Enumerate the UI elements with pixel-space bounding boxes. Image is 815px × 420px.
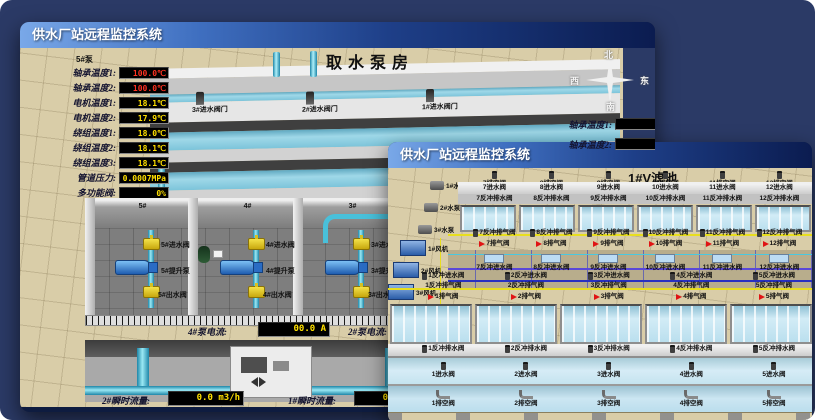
filter-cell[interactable] xyxy=(390,304,472,344)
backwash-air-valve[interactable]: 10反冲排气阀 xyxy=(637,229,694,237)
backwash-drain-label: 10反冲排水阀 xyxy=(646,195,686,202)
backwash-air-label: 1反冲排气阀 xyxy=(425,282,461,289)
backwash-inlet-label: 2反冲进水阀 xyxy=(511,272,547,279)
valve-icon xyxy=(588,272,593,280)
scada-desktop: 供水厂站远程监控系统 xyxy=(0,0,815,420)
backwash-air-valve[interactable]: 12反冲排气阀 xyxy=(751,229,808,237)
telemetry-value: 18.1℃ xyxy=(119,97,169,109)
side-readout-value xyxy=(615,118,655,130)
row-bottom-backwash-inlet: 1反冲进水阀2反冲进水阀3反冲进水阀4反冲进水阀5反冲进水阀6反冲进水阀 xyxy=(402,272,812,280)
backwash-inlet-valve[interactable]: 10反冲进水阀 xyxy=(637,254,694,271)
row-bottom-inlet: 1进水阀2进水阀3进水阀4进水阀5进水阀6进水阀 xyxy=(402,362,812,378)
backwash-inlet-label: 1反冲进水阀 xyxy=(428,272,464,279)
backwash-air-label: 2反冲排气阀 xyxy=(508,282,544,289)
telemetry-value: 100.0℃ xyxy=(119,67,169,79)
red-flag-icon xyxy=(479,241,485,247)
valve-icon xyxy=(771,362,776,370)
air-valve-label: 4排气阀 xyxy=(683,293,706,300)
row-bottom-air: 1排气阀2排气阀3排气阀4排气阀5排气阀6排气阀 xyxy=(402,293,812,300)
front-window[interactable]: 供水厂站远程监控系统 1#V滤池 1#水泵 2#水泵 3#水泵 xyxy=(388,142,812,420)
backwash-air-label: 4反冲排气阀 xyxy=(673,282,709,289)
vent-valve-label: 5排空阀 xyxy=(762,400,785,407)
backwash-air-label: 7反冲排气阀 xyxy=(479,229,515,236)
filter-cell[interactable] xyxy=(755,205,811,232)
inlet-valve[interactable]: 1进水阀 xyxy=(402,362,485,378)
inlet-valve[interactable]: 9进水阀 xyxy=(580,184,637,191)
red-flag-icon xyxy=(676,294,682,300)
tank-icon[interactable] xyxy=(198,246,210,263)
valve-icon xyxy=(606,171,611,179)
backwash-inlet-valve[interactable]: 1反冲进水阀 xyxy=(402,272,485,280)
backwash-inlet-valve[interactable]: 4反冲进水阀 xyxy=(650,272,733,280)
air-valve-label: 5排气阀 xyxy=(766,293,789,300)
backwash-drain-valve[interactable]: 9反冲排水阀 xyxy=(580,195,637,202)
valve-icon xyxy=(670,272,675,280)
inlet-valve[interactable]: 10进水阀 xyxy=(637,184,694,191)
red-flag-icon xyxy=(593,241,599,247)
backwash-drain-label: 12反冲排水阀 xyxy=(760,195,800,202)
inlet-gate-label: 3#进水阀门 xyxy=(192,104,228,115)
compass-north: 北 xyxy=(604,48,613,61)
lift-pump-label: 4#提升泵 xyxy=(266,266,295,276)
backwash-drain-label: 3反冲排水阀 xyxy=(594,345,630,352)
air-valve[interactable]: 12排气阀 xyxy=(751,240,808,247)
back-window-title: 供水厂站远程监控系统 xyxy=(32,27,162,42)
red-flag-icon xyxy=(706,241,712,247)
backwash-drain-valve[interactable]: 3反冲排水阀 xyxy=(567,345,650,353)
valve-icon xyxy=(422,272,427,280)
air-valve[interactable]: 3排气阀 xyxy=(567,293,650,300)
gate-valve-icon xyxy=(306,91,314,104)
inlet-valve-label: 2进水阀 xyxy=(514,371,537,378)
valve-icon xyxy=(670,345,675,353)
inlet-gate[interactable]: 1#进水阀门 xyxy=(422,88,458,112)
air-valve-label: 1排气阀 xyxy=(435,293,458,300)
cyan-post xyxy=(273,52,280,77)
blower[interactable]: 1#风机 xyxy=(400,240,448,256)
backwash-air-label: 10反冲排气阀 xyxy=(649,229,689,236)
compass: 北 西 南 东 xyxy=(548,48,655,114)
valve-actuator-icon xyxy=(769,254,789,263)
backwash-inlet-valve[interactable]: 12反冲进水阀 xyxy=(751,254,808,271)
valve-icon xyxy=(530,229,535,237)
air-valve[interactable]: 1排气阀 xyxy=(402,293,485,300)
backwash-air-valve[interactable]: 5反冲排气阀 xyxy=(733,282,812,289)
valve-icon xyxy=(422,345,427,353)
backwash-inlet-label: 5反冲进水阀 xyxy=(759,272,795,279)
air-valve[interactable]: 4排气阀 xyxy=(650,293,733,300)
row-bottom-vent: 1排空阀2排空阀3排空阀4排空阀5排空阀6排空阀 xyxy=(402,390,812,407)
inlet-valve-label: 8进水阀 xyxy=(540,184,563,191)
row-bottom-backwash-air: 1反冲排气阀2反冲排气阀3反冲排气阀4反冲排气阀5反冲排气阀6反冲排气阀 xyxy=(402,282,812,289)
vent-valve-label: 1排空阀 xyxy=(432,400,455,407)
side-readout-row: 轴承温度2: xyxy=(556,134,655,154)
lift-pump-icon[interactable] xyxy=(325,260,361,275)
swing-valve-icon xyxy=(602,390,616,399)
red-flag-icon xyxy=(536,241,542,247)
compass-west: 西 xyxy=(570,74,579,87)
backwash-drain-valve[interactable]: 11反冲排水阀 xyxy=(694,195,751,202)
backwash-inlet-valve[interactable]: 5反冲进水阀 xyxy=(733,272,812,280)
telemetry-value: 18.1℃ xyxy=(119,157,169,169)
backwash-drain-valve[interactable]: 4反冲排水阀 xyxy=(650,345,733,353)
telemetry-row: 绕组温度3: 18.1℃ xyxy=(28,155,178,170)
inlet-valve[interactable]: 7进水阀 xyxy=(466,184,523,191)
backwash-drain-label: 4反冲排水阀 xyxy=(676,345,712,352)
valve-icon xyxy=(757,229,762,237)
inlet-valve[interactable]: 12进水阀 xyxy=(751,184,808,191)
telemetry-row: 电机温度1: 18.1℃ xyxy=(28,95,178,110)
vent-valve[interactable]: 2排空阀 xyxy=(485,390,568,407)
telemetry-row: 轴承温度1: 100.0℃ xyxy=(28,65,178,80)
inlet-gate[interactable]: 2#进水阀门 xyxy=(302,91,338,115)
backwash-air-valve[interactable]: 2反冲排气阀 xyxy=(485,282,568,289)
inlet-valve-label: 12进水阀 xyxy=(766,184,793,191)
backwash-air-valve[interactable]: 7反冲排气阀 xyxy=(466,229,523,237)
telemetry-value: 100.0℃ xyxy=(119,82,169,94)
valve-icon xyxy=(753,345,758,353)
telemetry-label: 绕组温度1: xyxy=(28,126,119,139)
telemetry-row: 轴承温度2: 100.0℃ xyxy=(28,80,178,95)
filter-cell[interactable] xyxy=(730,304,812,344)
telemetry-label: 电机温度1: xyxy=(28,96,119,109)
inlet-valve[interactable]: 11进水阀 xyxy=(694,184,751,191)
front-window-title: 供水厂站远程监控系统 xyxy=(400,147,530,162)
inlet-valve[interactable]: 4进水阀 xyxy=(650,362,733,378)
inlet-valve-icon[interactable] xyxy=(143,238,160,250)
red-flag-icon xyxy=(511,294,517,300)
gate-valve-icon xyxy=(426,89,434,102)
row-top-air: 7排气阀8排气阀9排气阀10排气阀11排气阀12排气阀 xyxy=(466,240,808,247)
inlet-valve-label: 10进水阀 xyxy=(652,184,679,191)
backwash-inlet-label: 9反冲进水阀 xyxy=(590,264,626,271)
vent-valve-label: 3排空阀 xyxy=(597,400,620,407)
inlet-valve-label: 4#进水阀 xyxy=(266,240,295,250)
inlet-valve-label: 5#进水阀 xyxy=(161,240,190,250)
telemetry-value: 17.9℃ xyxy=(119,112,169,124)
backwash-inlet-valve[interactable]: 7反冲进水阀 xyxy=(466,254,523,271)
backwash-drain-label: 8反冲排水阀 xyxy=(533,195,569,202)
valve-actuator-icon xyxy=(655,254,675,263)
backwash-drain-label: 7反冲排水阀 xyxy=(476,195,512,202)
air-valve[interactable]: 10排气阀 xyxy=(637,240,694,247)
row-top-backwash-air: 7反冲排气阀8反冲排气阀9反冲排气阀10反冲排气阀11反冲排气阀12反冲排气阀 xyxy=(466,229,808,237)
red-flag-icon xyxy=(428,294,434,300)
valve-icon xyxy=(587,229,592,237)
red-flag-icon xyxy=(594,294,600,300)
side-readout-label: 轴承温度2: xyxy=(556,138,615,151)
inlet-valve[interactable]: 2进水阀 xyxy=(485,362,568,378)
valve-icon xyxy=(505,345,510,353)
swing-valve-icon xyxy=(767,390,781,399)
back-window-title-bar[interactable]: 供水厂站远程监控系统 xyxy=(20,22,655,48)
valve-icon xyxy=(441,362,446,370)
row-top-inlet: 7进水阀8进水阀9进水阀10进水阀11进水阀12进水阀 xyxy=(466,184,808,191)
vent-valve-label: 4排空阀 xyxy=(680,400,703,407)
pump-bay: 5# 5#进水阀 5#提升泵 5#出水阀 xyxy=(90,198,195,318)
compass-east: 东 xyxy=(640,74,649,87)
backwash-air-valve[interactable]: 9反冲排气阀 xyxy=(580,229,637,237)
telemetry-row: 电机温度2: 17.9℃ xyxy=(28,110,178,125)
telemetry-label: 轴承温度2: xyxy=(28,81,119,94)
side-readout-value xyxy=(615,138,655,150)
backwash-air-label: 9反冲排气阀 xyxy=(593,229,629,236)
filter-cell[interactable] xyxy=(475,304,557,344)
backwash-drain-label: 2反冲排水阀 xyxy=(511,345,547,352)
backwash-drain-valve[interactable]: 2反冲排水阀 xyxy=(485,345,568,353)
valve-icon xyxy=(643,229,648,237)
filter-cell[interactable] xyxy=(696,205,752,232)
backwash-drain-valve[interactable]: 10反冲排水阀 xyxy=(637,195,694,202)
vent-valve[interactable]: 5排空阀 xyxy=(733,390,812,407)
vent-valve[interactable]: 3排空阀 xyxy=(567,390,650,407)
inlet-valve-label: 5进水阀 xyxy=(762,371,785,378)
backwash-inlet-valve[interactable]: 11反冲进水阀 xyxy=(694,254,751,271)
air-valve-label: 2排气阀 xyxy=(518,293,541,300)
backwash-air-label: 8反冲排气阀 xyxy=(536,229,572,236)
backwash-drain-valve[interactable]: 1反冲排水阀 xyxy=(402,345,485,353)
backwash-air-label: 12反冲排气阀 xyxy=(763,229,803,236)
backwash-inlet-label: 8反冲进水阀 xyxy=(533,264,569,271)
backwash-inlet-label: 12反冲进水阀 xyxy=(760,264,800,271)
pump-current-left-label: 4#泵电流: xyxy=(188,325,227,338)
red-flag-icon xyxy=(759,294,765,300)
air-valve[interactable]: 5排气阀 xyxy=(733,293,812,300)
gate-valve-icon xyxy=(196,92,204,105)
valve-actuator-icon xyxy=(541,254,561,263)
air-valve[interactable]: 7排气阀 xyxy=(466,240,523,247)
cyan-post xyxy=(310,51,317,77)
valve-actuator-icon xyxy=(712,254,732,263)
vent-valve[interactable]: 1排空阀 xyxy=(402,390,485,407)
air-valve[interactable]: 11排气阀 xyxy=(694,240,751,247)
lift-pump-icon[interactable] xyxy=(220,260,256,275)
bottom-walkway xyxy=(388,412,812,420)
telemetry-value: 18.1℃ xyxy=(119,142,169,154)
backwash-drain-valve[interactable]: 12反冲排水阀 xyxy=(751,195,808,202)
valve-actuator-icon xyxy=(598,254,618,263)
side-readout-label: 轴承温度1: xyxy=(556,118,615,131)
air-valve-label: 10排气阀 xyxy=(656,240,683,247)
inlet-valve[interactable]: 5进水阀 xyxy=(733,362,812,378)
filter-cell[interactable] xyxy=(578,205,634,232)
side-readout-row: 轴承温度1: xyxy=(556,114,655,134)
valve-icon xyxy=(689,362,694,370)
filter-cell[interactable] xyxy=(645,304,727,344)
air-valve[interactable]: 2排气阀 xyxy=(485,293,568,300)
tank-flag-icon xyxy=(213,250,223,258)
telemetry-label: 管道压力: xyxy=(28,171,119,184)
outlet-valve-label: 5#出水阀 xyxy=(158,290,187,300)
filter-cell[interactable] xyxy=(460,205,516,232)
backwash-inlet-valve[interactable]: 3反冲进水阀 xyxy=(567,272,650,280)
air-valve-label: 12排气阀 xyxy=(770,240,797,247)
pump-icon xyxy=(418,225,432,234)
backwash-air-label: 5反冲排气阀 xyxy=(756,282,792,289)
lift-pump-icon[interactable] xyxy=(115,260,151,275)
side-readouts: 轴承温度1: 轴承温度2: xyxy=(556,114,655,154)
swing-valve-icon xyxy=(684,390,698,399)
backwash-inlet-label: 3反冲进水阀 xyxy=(594,272,630,279)
backwash-inlet-valve[interactable]: 9反冲进水阀 xyxy=(580,254,637,271)
telemetry-label: 轴承温度1: xyxy=(28,66,119,79)
valve-actuator-icon xyxy=(484,254,504,263)
compass-south: 南 xyxy=(606,100,615,113)
flow-left-value: 0.0 m3/h xyxy=(168,391,244,406)
air-valve-label: 3排气阀 xyxy=(601,293,624,300)
pump-bay-id: 4# xyxy=(195,203,300,210)
backwash-inlet-label: 7反冲进水阀 xyxy=(476,264,512,271)
valve-icon xyxy=(523,362,528,370)
inlet-valve-icon[interactable] xyxy=(248,238,265,250)
telemetry-value: 0.0007MPa xyxy=(119,172,169,184)
filter-cell[interactable] xyxy=(560,304,642,344)
telemetry-value: 18.0℃ xyxy=(119,127,169,139)
backwash-air-valve[interactable]: 1反冲排气阀 xyxy=(402,282,485,289)
telemetry-value: 0% xyxy=(119,187,169,199)
backwash-inlet-label: 11反冲进水阀 xyxy=(703,264,742,271)
valve-icon xyxy=(753,272,758,280)
telemetry-row: 绕组温度2: 18.1℃ xyxy=(28,140,178,155)
row-top-backwash-inlet: 7反冲进水阀8反冲进水阀9反冲进水阀10反冲进水阀11反冲进水阀12反冲进水阀 xyxy=(466,254,808,271)
outlet-valve-label: 4#出水阀 xyxy=(263,290,292,300)
valve-icon xyxy=(473,229,478,237)
valve-icon xyxy=(720,171,725,179)
inlet-valve-label: 4进水阀 xyxy=(680,371,703,378)
bottom-equipment-row xyxy=(388,413,812,420)
valve-icon xyxy=(549,171,554,179)
backwash-air-valve[interactable]: 11反冲排气阀 xyxy=(694,229,751,237)
backwash-drain-valve[interactable]: 5反冲排水阀 xyxy=(733,345,812,353)
backwash-inlet-label: 4反冲进水阀 xyxy=(676,272,712,279)
valve-icon xyxy=(777,171,782,179)
telemetry-label: 绕组温度2: xyxy=(28,141,119,154)
filter-cell[interactable] xyxy=(519,205,575,232)
red-flag-icon xyxy=(763,241,769,247)
row-top-backwash-drain: 7反冲排水阀8反冲排水阀9反冲排水阀10反冲排水阀11反冲排水阀12反冲排水阀 xyxy=(466,195,808,202)
pump-house-heading: 取水泵房 xyxy=(326,49,414,73)
vent-valve[interactable]: 4排空阀 xyxy=(650,390,733,407)
swing-valve-icon xyxy=(519,390,533,399)
inlet-gate-label: 2#进水阀门 xyxy=(302,104,338,115)
backwash-drain-label: 11反冲排水阀 xyxy=(703,195,742,202)
backwash-drain-label: 1反冲排水阀 xyxy=(428,345,464,352)
inlet-valve-label: 1进水阀 xyxy=(432,371,455,378)
backwash-air-valve[interactable]: 4反冲排气阀 xyxy=(650,282,733,289)
pump-icon xyxy=(424,203,438,212)
backwash-drain-label: 9反冲排水阀 xyxy=(590,195,626,202)
blower-label: 1#风机 xyxy=(428,243,448,253)
air-valve[interactable]: 8排气阀 xyxy=(523,240,580,247)
pump-icon xyxy=(430,181,444,190)
flow-left-label: 2#瞬时流量: xyxy=(102,394,150,407)
telemetry-row: 绕组温度1: 18.0℃ xyxy=(28,125,178,140)
backwash-air-valve[interactable]: 3反冲排气阀 xyxy=(567,282,650,289)
red-flag-icon xyxy=(649,241,655,247)
backwash-inlet-valve[interactable]: 8反冲进水阀 xyxy=(523,254,580,271)
air-valve-label: 11排气阀 xyxy=(713,240,739,247)
valve-icon xyxy=(505,272,510,280)
telemetry-label: 电机温度2: xyxy=(28,111,119,124)
backwash-drain-label: 5反冲排水阀 xyxy=(759,345,795,352)
telemetry-panel: 5#泵 轴承温度1: 100.0℃ 轴承温度2: 100.0℃ 电机温度1: 1… xyxy=(28,54,178,200)
telemetry-row: 管道压力: 0.0007MPa xyxy=(28,170,178,185)
inlet-gate-label: 1#进水阀门 xyxy=(422,101,458,112)
lift-pump-label: 5#提升泵 xyxy=(161,266,190,276)
backwash-air-label: 3反冲排气阀 xyxy=(591,282,627,289)
air-valve[interactable]: 9排气阀 xyxy=(580,240,637,247)
telemetry-header: 5#泵 xyxy=(76,54,178,65)
air-valve-label: 9排气阀 xyxy=(600,240,623,247)
valve-icon xyxy=(588,345,593,353)
backwash-drain-valve[interactable]: 7反冲排水阀 xyxy=(466,195,523,202)
pump-bay-id: 5# xyxy=(90,203,195,210)
telemetry-label: 绕组温度3: xyxy=(28,156,119,169)
valve-icon xyxy=(492,171,497,179)
pump-label: 3#水泵 xyxy=(434,224,454,234)
pump-current-left-value: 00.0 A xyxy=(258,322,330,337)
swing-valve-icon xyxy=(436,390,450,399)
pump-bay: 4# 4#进水阀 4#提升泵 4#出水阀 xyxy=(195,198,300,318)
blower-icon xyxy=(400,240,426,256)
inlet-valve[interactable]: 8进水阀 xyxy=(523,184,580,191)
inlet-valve-label: 9进水阀 xyxy=(597,184,620,191)
inlet-valve-label: 7进水阀 xyxy=(483,184,506,191)
valve-icon xyxy=(663,171,668,179)
inlet-valve[interactable]: 3进水阀 xyxy=(567,362,650,378)
vent-valve-label: 2排空阀 xyxy=(514,400,537,407)
drain-pump[interactable]: 2#水泵 xyxy=(424,202,460,212)
inlet-valve-label: 3进水阀 xyxy=(597,371,620,378)
pump-current-right-label: 2#泵电流: xyxy=(348,325,387,338)
filter-cells-top xyxy=(458,205,812,232)
filter-cell[interactable] xyxy=(637,205,693,232)
valve-icon xyxy=(606,362,611,370)
drain-pump[interactable]: 3#水泵 xyxy=(418,224,454,234)
backwash-inlet-label: 10反冲进水阀 xyxy=(646,264,686,271)
row-bottom-backwash-drain: 1反冲排水阀2反冲排水阀3反冲排水阀4反冲排水阀5反冲排水阀6反冲排水阀 xyxy=(402,345,812,353)
valve-icon xyxy=(700,229,705,237)
backwash-inlet-valve[interactable]: 2反冲进水阀 xyxy=(485,272,568,280)
flow-right-label: 1#瞬时流量: xyxy=(288,394,336,407)
air-valve-label: 7排气阀 xyxy=(486,240,509,247)
filter-cells-bottom xyxy=(388,304,812,344)
front-window-content: 1#V滤池 1#水泵 2#水泵 3#水泵 xyxy=(388,168,812,420)
backwash-air-valve[interactable]: 8反冲排气阀 xyxy=(523,229,580,237)
inlet-gate[interactable]: 3#进水阀门 xyxy=(192,91,228,115)
inlet-valve-label: 11进水阀 xyxy=(709,184,735,191)
backwash-drain-valve[interactable]: 8反冲排水阀 xyxy=(523,195,580,202)
air-valve-label: 8排气阀 xyxy=(543,240,566,247)
backwash-air-label: 11反冲排气阀 xyxy=(706,229,745,236)
